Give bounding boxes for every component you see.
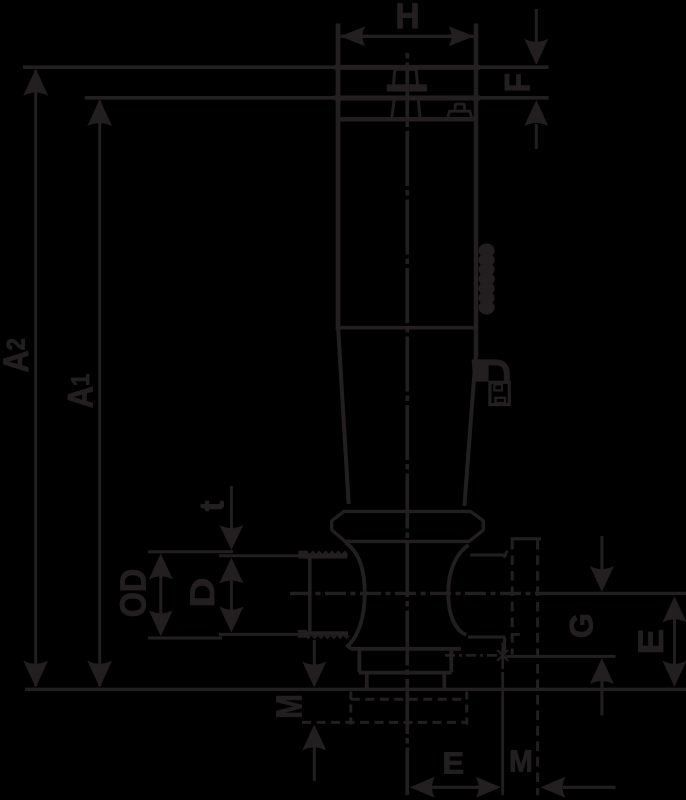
svg-text:M: M — [509, 745, 533, 779]
svg-text:M: M — [269, 694, 309, 719]
svg-text:OD: OD — [114, 569, 154, 618]
svg-text:E: E — [631, 629, 670, 655]
svg-text:A1: A1 — [61, 374, 100, 408]
svg-text:A2: A2 — [0, 338, 36, 372]
svg-text:F: F — [499, 73, 538, 92]
svg-text:t: t — [194, 501, 232, 512]
svg-text:D: D — [185, 578, 223, 608]
svg-text:E: E — [442, 745, 464, 780]
svg-text:G: G — [564, 613, 600, 638]
svg-text:H: H — [395, 0, 419, 36]
